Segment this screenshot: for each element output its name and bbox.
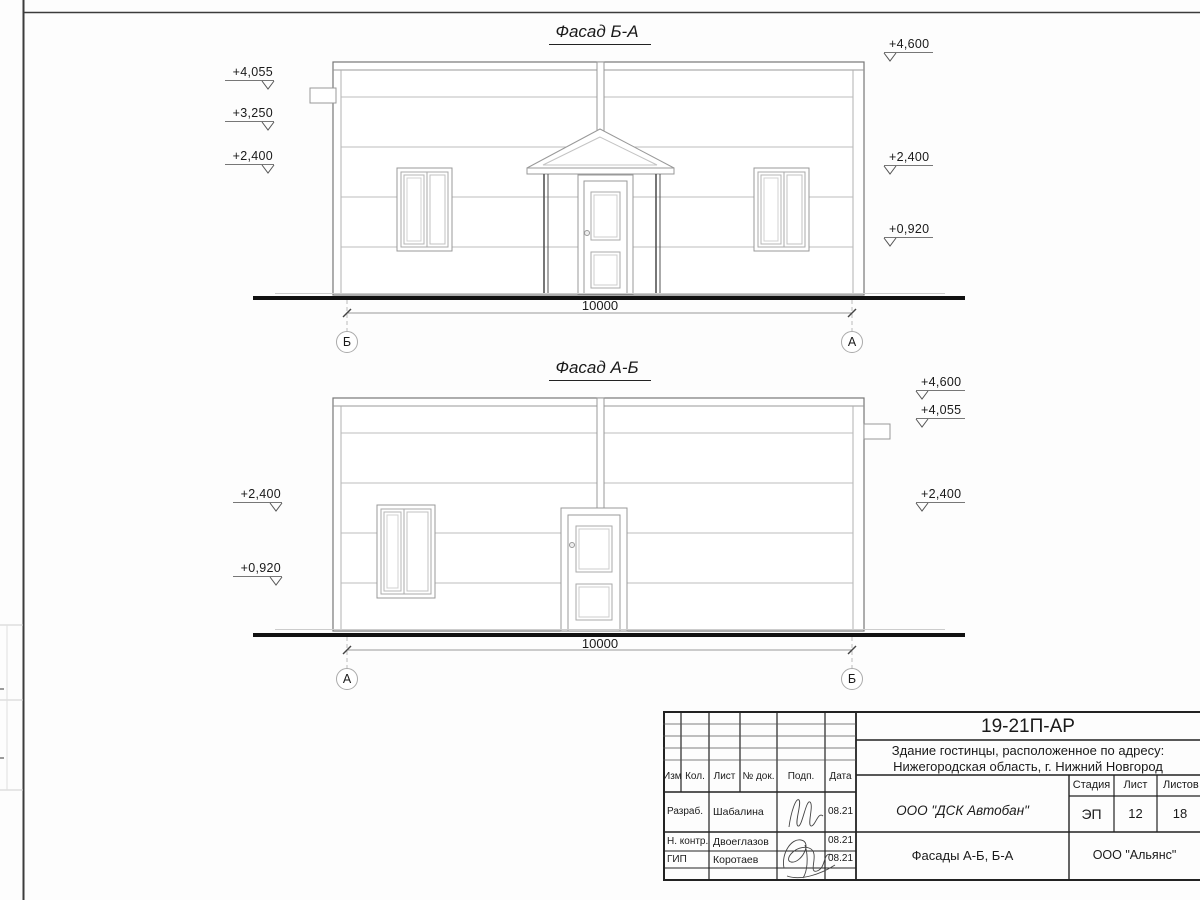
elevation-mark: +2,400 — [208, 487, 281, 501]
date-nkontr: 08.21 — [825, 835, 856, 846]
name-dvoeglazov: Двоеглазов — [713, 836, 775, 848]
name-korotaev: Коротаев — [713, 854, 775, 866]
entrance-door-ab — [561, 508, 627, 631]
elevation-mark: +0,920 — [889, 222, 929, 236]
design-company: ООО "Альянс" — [1069, 848, 1200, 862]
role-gip: ГИП — [667, 854, 709, 865]
window-ba-right — [754, 168, 809, 251]
sheet-header: Лист — [1114, 779, 1157, 791]
elevation-mark: +4,600 — [889, 37, 929, 51]
stage-header: Стадия — [1069, 779, 1114, 791]
drawing-sheet: { "facade_ba": { "title": "Фасад Б-А", "… — [0, 0, 1200, 900]
axis-label-b: Б — [332, 335, 362, 349]
axis-label-b: Б — [837, 672, 867, 686]
elevation-mark: +3,250 — [200, 106, 273, 120]
elevation-mark: +2,400 — [889, 150, 929, 164]
axis-label-a: А — [332, 672, 362, 686]
contractor-name: ООО "ДСК Автобан" — [858, 803, 1067, 818]
project-name-line1: Здание гостинцы, расположенное по адресу… — [858, 743, 1198, 758]
elevation-mark: +2,400 — [200, 149, 273, 163]
col-header-list: Лист — [709, 771, 740, 782]
door-handle — [585, 231, 590, 236]
wall-outlet-left — [310, 88, 336, 103]
dimension-label: 10000 — [550, 636, 650, 651]
sheet-title: Фасады А-Б, Б-А — [858, 848, 1067, 863]
name-shabalina: Шабалина — [713, 806, 775, 818]
entrance-door-ba — [578, 175, 633, 294]
document-code: 19-21П-АР — [858, 716, 1198, 738]
axis-label-a: А — [837, 335, 867, 349]
elevation-mark: +0,920 — [208, 561, 281, 575]
stage-value: ЭП — [1069, 806, 1114, 822]
role-nkontr: Н. контр. — [667, 836, 711, 847]
signature-shabalina — [789, 800, 823, 827]
elevation-mark: +4,600 — [921, 375, 961, 389]
col-header-izm: Изм. — [663, 771, 681, 782]
col-header-data: Дата — [825, 771, 856, 782]
role-razrab: Разраб. — [667, 806, 709, 817]
window-ab-left — [377, 505, 435, 598]
elevation-mark: +2,400 — [921, 487, 961, 501]
vent-pipe — [597, 62, 604, 131]
sheet-value: 12 — [1114, 806, 1157, 821]
wall-outlet-right — [864, 424, 890, 439]
vent-pipe — [597, 398, 604, 508]
window-ba-left — [397, 168, 452, 251]
door-handle — [570, 543, 575, 548]
date-gip: 08.21 — [825, 853, 856, 864]
dimension-label: 10000 — [550, 298, 650, 313]
facade-ab-title: Фасад А-Б — [490, 358, 710, 381]
elevation-mark: +4,055 — [200, 65, 273, 79]
facade-ba-title: Фасад Б-А — [490, 22, 710, 45]
project-name-line2: Нижегородская область, г. Нижний Новгоро… — [858, 759, 1198, 774]
sheets-header: Листов — [1163, 779, 1200, 791]
sheets-value: 18 — [1157, 806, 1200, 821]
col-header-kol: Кол. — [681, 771, 709, 782]
col-header-ndok: № док. — [740, 771, 777, 782]
date-razrab: 08.21 — [825, 806, 856, 817]
col-header-podp: Подп. — [777, 771, 825, 782]
elevation-mark: +4,055 — [921, 403, 961, 417]
